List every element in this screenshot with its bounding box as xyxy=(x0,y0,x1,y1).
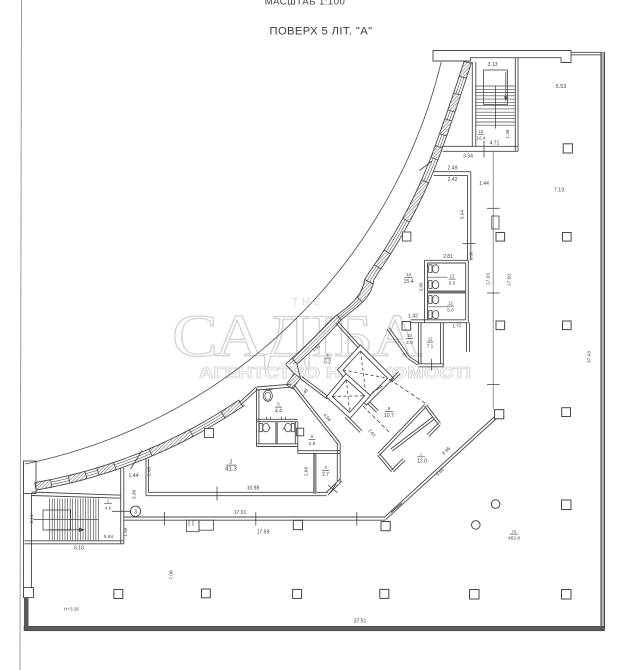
svg-text:11: 11 xyxy=(428,337,433,342)
svg-text:3: 3 xyxy=(134,510,137,516)
svg-text:482.8: 482.8 xyxy=(508,536,520,542)
svg-text:15: 15 xyxy=(479,129,484,134)
svg-text:5.0: 5.0 xyxy=(447,308,454,314)
svg-text:7: 7 xyxy=(269,427,271,431)
svg-text:16: 16 xyxy=(512,529,517,534)
svg-text:41.3: 41.3 xyxy=(225,467,237,473)
svg-text:2.8: 2.8 xyxy=(309,441,316,447)
svg-text:5.84: 5.84 xyxy=(104,534,114,540)
svg-text:9: 9 xyxy=(388,406,391,411)
svg-text:2.0: 2.0 xyxy=(406,340,413,346)
svg-text:3.34: 3.34 xyxy=(463,154,473,160)
svg-text:16.4: 16.4 xyxy=(477,136,486,141)
svg-text:2.45: 2.45 xyxy=(147,467,153,477)
svg-text:4.71: 4.71 xyxy=(490,141,500,147)
svg-text:3.90: 3.90 xyxy=(418,282,423,291)
svg-text:37.43: 37.43 xyxy=(587,351,593,363)
svg-text:1.42: 1.42 xyxy=(408,314,418,320)
svg-text:7.1: 7.1 xyxy=(427,344,434,350)
svg-text:10.98: 10.98 xyxy=(247,486,260,492)
svg-text:5.0: 5.0 xyxy=(449,281,456,287)
svg-text:1.44: 1.44 xyxy=(129,473,139,479)
svg-text:1.58: 1.58 xyxy=(123,527,128,536)
svg-text:17.03: 17.03 xyxy=(486,273,492,285)
svg-text:7.08: 7.08 xyxy=(169,570,175,580)
svg-text:2: 2 xyxy=(230,460,233,466)
svg-text:1.38: 1.38 xyxy=(505,129,510,138)
svg-text:12.0: 12.0 xyxy=(417,459,427,465)
svg-text:2.69: 2.69 xyxy=(304,467,310,477)
svg-text:2.7: 2.7 xyxy=(322,472,329,478)
svg-text:МАСШТАБ 1:100: МАСШТАБ 1:100 xyxy=(265,0,346,8)
svg-text:Н+3.26: Н+3.26 xyxy=(64,607,79,612)
svg-text:5.2: 5.2 xyxy=(324,360,331,366)
svg-text:14: 14 xyxy=(406,272,412,277)
svg-text:17.01: 17.01 xyxy=(234,510,247,516)
svg-text:3.39: 3.39 xyxy=(131,490,137,500)
svg-text:8: 8 xyxy=(282,427,284,431)
svg-text:4.5: 4.5 xyxy=(105,506,112,511)
svg-text:ПОВЕРХ 5 ЛІТ. "А": ПОВЕРХ 5 ЛІТ. "А" xyxy=(270,26,373,38)
svg-text:5.53: 5.53 xyxy=(556,84,567,90)
svg-text:7.13: 7.13 xyxy=(554,188,565,194)
svg-text:5.64: 5.64 xyxy=(460,210,466,220)
svg-text:15.4: 15.4 xyxy=(403,279,413,285)
svg-text:37.51: 37.51 xyxy=(354,619,367,625)
svg-text:12: 12 xyxy=(448,301,453,306)
svg-text:13: 13 xyxy=(450,274,455,279)
svg-text:6.10: 6.10 xyxy=(74,546,84,552)
svg-text:2.42: 2.42 xyxy=(448,177,458,183)
svg-text:2.49: 2.49 xyxy=(448,165,458,171)
svg-text:1.44: 1.44 xyxy=(479,181,489,187)
svg-text:17.59: 17.59 xyxy=(257,530,270,536)
svg-text:3.14: 3.14 xyxy=(29,514,35,524)
svg-text:2.81: 2.81 xyxy=(443,254,453,260)
svg-text:10.7: 10.7 xyxy=(384,413,394,419)
svg-text:10: 10 xyxy=(407,333,412,338)
svg-text:4.4: 4.4 xyxy=(275,409,282,415)
svg-text:17.50: 17.50 xyxy=(507,274,513,286)
svg-text:3.13: 3.13 xyxy=(487,62,497,68)
